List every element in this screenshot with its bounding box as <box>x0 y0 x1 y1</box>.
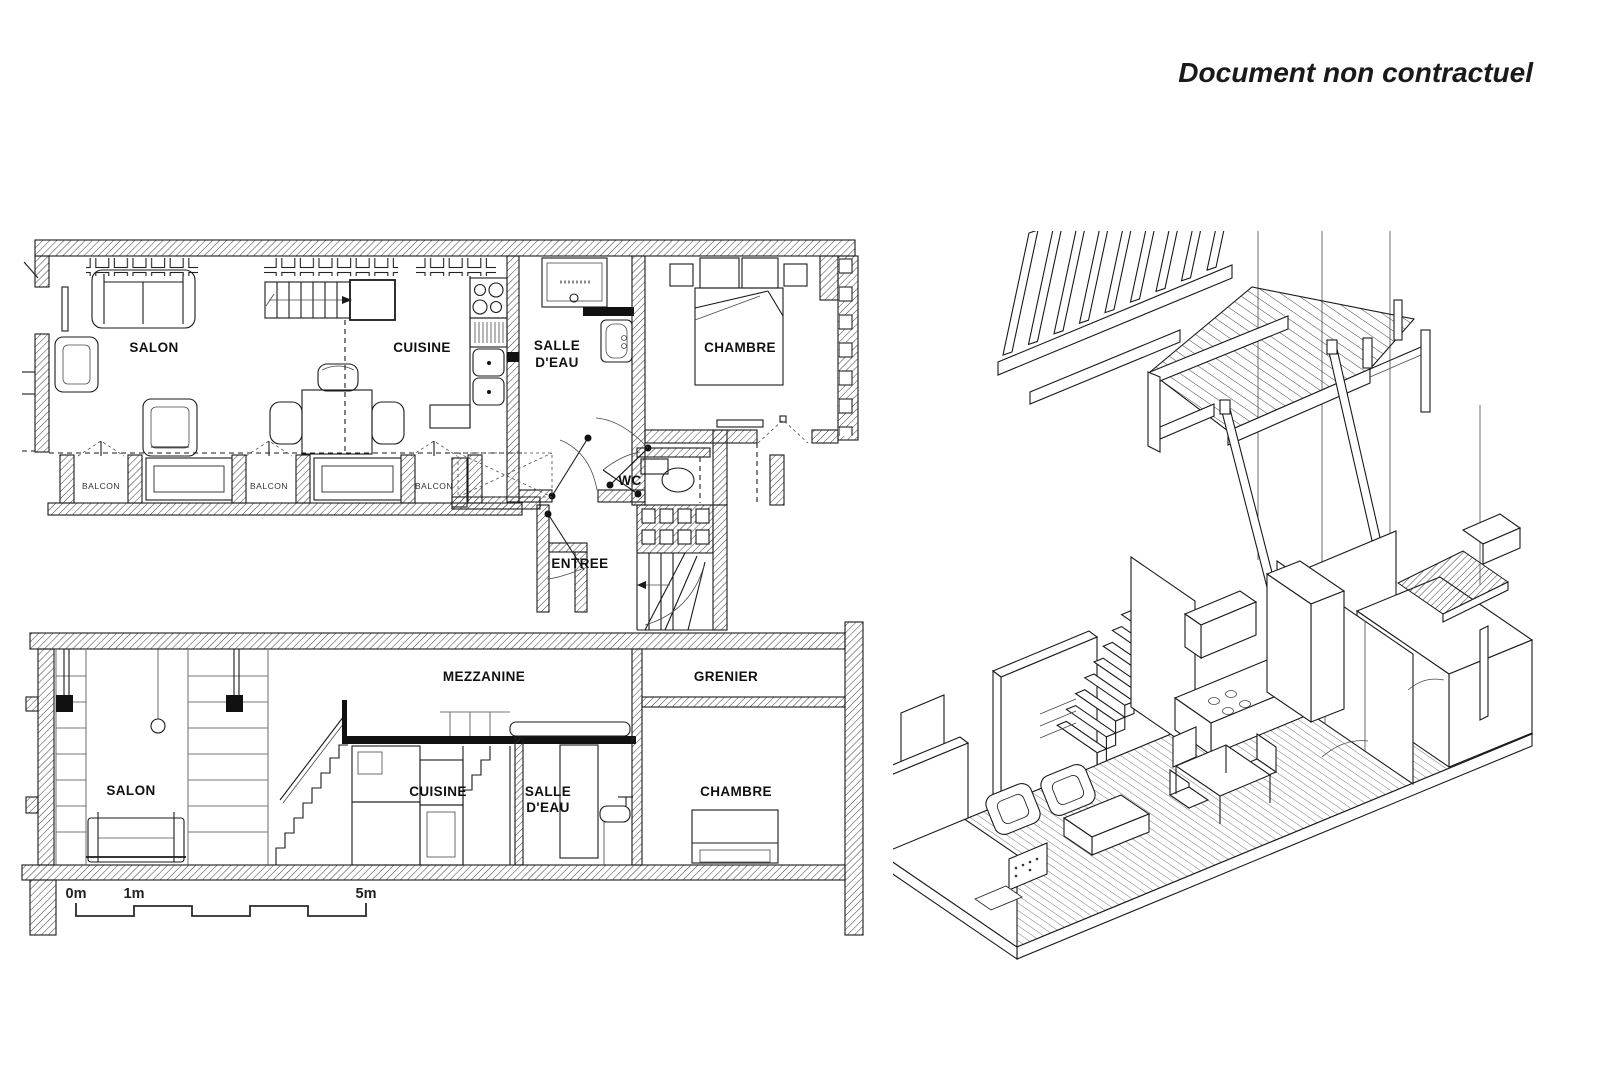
sofa <box>92 270 195 328</box>
dining-table <box>270 364 404 454</box>
section-label-salon: SALON <box>106 783 155 798</box>
room-label-balcon: BALCON <box>82 481 120 491</box>
room-label-salle-deau: SALLE <box>534 338 580 353</box>
disclaimer-text: Document non contractuel <box>1178 57 1534 88</box>
room-label-cuisine: CUISINE <box>393 340 451 355</box>
room-label-salle-deau: D'EAU <box>535 355 578 370</box>
room-label-chambre: CHAMBRE <box>704 340 776 355</box>
scale-label-1m: 1m <box>124 886 145 902</box>
armchair <box>143 399 197 456</box>
section-label-cuisine: CUISINE <box>409 784 467 799</box>
bed <box>670 258 807 385</box>
stairs-plan <box>265 280 395 320</box>
room-label-entree: ENTREE <box>551 556 608 571</box>
floor-plan: SALON CUISINE SALLE D'EAU CHAMBRE WC ENT… <box>22 240 858 630</box>
bathroom-section <box>560 745 633 865</box>
washbasin <box>601 320 632 362</box>
section-label-grenier: GRENIER <box>694 669 758 684</box>
drawing-sheet: SALON CUISINE SALLE D'EAU CHAMBRE WC ENT… <box>0 0 1620 1080</box>
section-label-mezzanine: MEZZANINE <box>443 669 525 684</box>
sofa-section <box>86 812 186 862</box>
bed-section <box>692 810 778 863</box>
scale-label-5m: 5m <box>356 886 377 902</box>
architectural-drawing: SALON CUISINE SALLE D'EAU CHAMBRE WC ENT… <box>0 0 1620 1080</box>
section-label-salle-deau: SALLE <box>525 784 571 799</box>
scale-bar: 0m 1m 5m <box>66 886 377 916</box>
kitchen-section <box>352 746 510 865</box>
shower <box>542 258 607 307</box>
axonometric-view <box>873 145 1532 959</box>
section-drawing: 0m 1m 5m SALON CUISINE SALLE D'EAU MEZZA… <box>22 622 863 935</box>
stairs-section <box>276 700 348 865</box>
balcony-door-swings <box>78 441 457 456</box>
room-label-balcon: BALCON <box>415 481 453 491</box>
room-label-salon: SALON <box>129 340 178 355</box>
pendant-lamps <box>56 649 243 733</box>
section-label-salle-deau: D'EAU <box>526 800 569 815</box>
room-label-wc: WC <box>618 473 641 488</box>
armchair <box>55 337 98 392</box>
mezzanine-panel <box>1148 287 1430 452</box>
scale-label-0m: 0m <box>66 886 87 902</box>
room-label-balcon: BALCON <box>250 481 288 491</box>
section-label-chambre: CHAMBRE <box>700 784 772 799</box>
